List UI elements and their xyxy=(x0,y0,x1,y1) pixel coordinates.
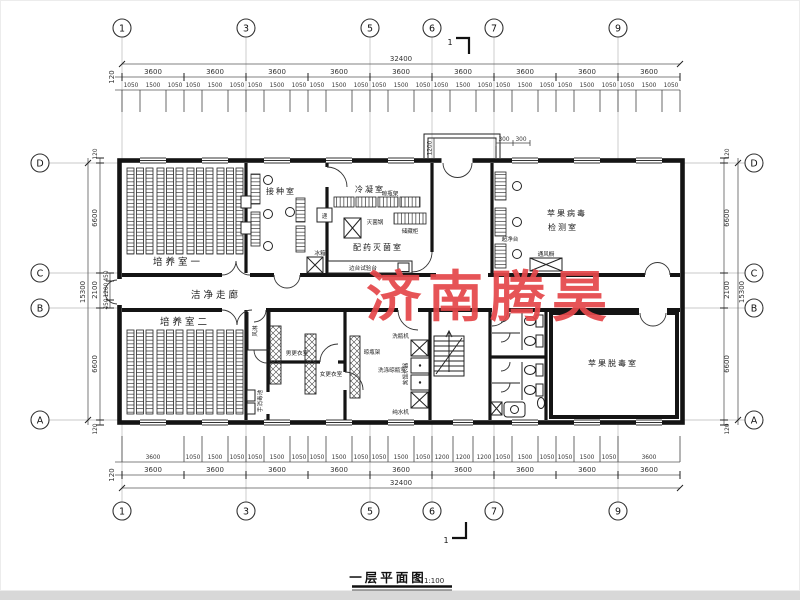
dim-bay: 3600 xyxy=(144,68,162,76)
bottle-washer-label: 洗瓶机 xyxy=(392,332,409,340)
dim-bay: 3600 xyxy=(268,68,286,76)
dim-bay: 3600 xyxy=(392,466,410,474)
room-label-culture1: 培养室一 xyxy=(153,256,203,268)
dim-sub: 1050 xyxy=(230,455,245,461)
clean-bench-label: 超净台 xyxy=(502,235,519,243)
dim-left-sub: 450 xyxy=(104,270,110,281)
dim-sub: 1050 xyxy=(540,83,555,89)
dim-sub: 1050 xyxy=(558,83,573,89)
dim-bay: 3600 xyxy=(640,68,658,76)
hand-sink xyxy=(247,403,255,414)
floor-plan-page: 32400 120 3600 3600 3600 3600 3600 3600 … xyxy=(0,0,800,600)
dim-sub: 1050 xyxy=(186,455,201,461)
stool xyxy=(286,208,295,217)
dim-sub: 1200 xyxy=(435,455,450,461)
grid-bubble-label: 6 xyxy=(429,24,435,35)
dim-sub: 1500 xyxy=(580,455,595,461)
dim-overall-width: 32400 xyxy=(390,479,412,487)
stool xyxy=(264,210,273,219)
grid-bubble-label: 1 xyxy=(119,507,125,518)
dim-porch-step: 300 xyxy=(515,137,526,143)
dim-overall-height: 15300 xyxy=(79,281,87,303)
drawing-title: 一层平面图 xyxy=(349,570,427,585)
dim-sub: 1500 xyxy=(518,455,533,461)
dim-sub: 1200 xyxy=(456,455,471,461)
dim-sub: 1050 xyxy=(416,83,431,89)
dim-sub: 1500 xyxy=(642,83,657,89)
room-label-condensing: 冷凝室 xyxy=(355,184,385,194)
dim-sub: 1050 xyxy=(354,83,369,89)
dim-sub: 1050 xyxy=(620,83,635,89)
bottle-rack-label: 晾瓶架 xyxy=(382,190,399,198)
dim-sub: 1050 xyxy=(416,455,431,461)
dim-left-sub: 450 xyxy=(104,298,110,309)
dim-sub: 1500 xyxy=(208,455,223,461)
dim-bay: 3600 xyxy=(516,466,534,474)
grid-bubble-label: D xyxy=(750,159,757,170)
dim-sub: 1050 xyxy=(434,83,449,89)
detox-door-gap xyxy=(639,307,667,317)
room-label-detox: 苹果脱毒室 xyxy=(588,358,638,368)
grid-bubble-label: 3 xyxy=(243,24,249,35)
room-label-dispensing: 配药灭菌室 xyxy=(353,242,403,252)
pass-box xyxy=(241,222,251,234)
dim-bay: 3600 xyxy=(454,68,472,76)
room-label-inoculation: 接种室 xyxy=(266,186,296,196)
grid-bubble-label: 9 xyxy=(615,24,621,35)
grid-bubble-label: C xyxy=(37,269,44,280)
dim-sub: 1050 xyxy=(310,83,325,89)
dim-sub: 1050 xyxy=(496,83,511,89)
dim-sub: 1050 xyxy=(372,455,387,461)
distiller-label: 蒸馏水器 xyxy=(402,362,410,385)
dim-bay: 3600 xyxy=(268,466,286,474)
bottle-rack-label: 晾瓶架 xyxy=(364,348,381,356)
grid-bubble-label: 5 xyxy=(367,24,373,35)
sterilizer-label: 灭菌锅 xyxy=(367,218,384,226)
dim-bay: 3600 xyxy=(392,68,410,76)
dim-sub: 1050 xyxy=(124,83,139,89)
dim-sub: 1050 xyxy=(496,455,511,461)
dim-right: 6600 xyxy=(723,209,731,227)
dim-overall-height: 15300 xyxy=(738,281,746,303)
floor-plan-drawing: 32400 120 3600 3600 3600 3600 3600 3600 … xyxy=(0,0,800,600)
dim-sub: 1050 xyxy=(372,83,387,89)
dim-bay: 3600 xyxy=(578,68,596,76)
dim-sub: 1050 xyxy=(354,455,369,461)
dim-right: 2100 xyxy=(723,281,731,299)
corridor-west-gap xyxy=(115,279,124,305)
room-detox: 苹果脱毒室 xyxy=(588,358,638,368)
scan-edge-bottom xyxy=(0,591,800,600)
fridge-label: 冰箱 xyxy=(314,249,326,257)
dim-bay: 3600 xyxy=(206,68,224,76)
pass-box xyxy=(241,196,251,208)
dim-sub: 1050 xyxy=(664,83,679,89)
toilet xyxy=(536,335,543,347)
dim-sub: 1500 xyxy=(580,83,595,89)
dim-sub: 1500 xyxy=(332,455,347,461)
dim-bay: 3600 xyxy=(330,68,348,76)
watermark: 济南腾昊 xyxy=(366,265,614,329)
room-label-female-locker: 女更衣室 xyxy=(320,370,343,378)
dim-sub: 1050 xyxy=(602,83,617,89)
grid-bubble-label: A xyxy=(37,416,44,427)
toilet xyxy=(536,384,543,396)
storage-cabinet-label: 储藏柜 xyxy=(402,227,419,235)
locker-rack xyxy=(270,326,281,384)
dim-bay: 3600 xyxy=(330,466,348,474)
dim-left: 120 xyxy=(93,423,99,434)
room-label-detection-line2: 检测室 xyxy=(548,222,578,232)
drawing-scale: 1:100 xyxy=(424,577,444,585)
dim-sub: 1500 xyxy=(270,83,285,89)
dim-sub: 1500 xyxy=(208,83,223,89)
entrance-gap xyxy=(442,156,473,166)
dim-bay: 3600 xyxy=(454,466,472,474)
dim-right: 6600 xyxy=(723,355,731,373)
dim-sub: 1050 xyxy=(540,455,555,461)
dim-sub: 1500 xyxy=(518,83,533,89)
bottle-rack xyxy=(350,336,360,398)
dim-sub: 3600 xyxy=(146,455,161,461)
grid-bubble-label: 5 xyxy=(367,507,373,518)
grid-bubble-label: B xyxy=(751,304,758,315)
dim-bay: 3600 xyxy=(578,466,596,474)
dim-porch-step: 300 xyxy=(498,137,509,143)
dim-sub: 1050 xyxy=(602,455,617,461)
dim-sub: 1500 xyxy=(456,83,471,89)
room-label-corridor: 洁净走廊 xyxy=(191,289,241,301)
room-label-male-locker: 男更衣室 xyxy=(286,349,309,357)
dim-sub: 1050 xyxy=(230,83,245,89)
urinal xyxy=(538,398,545,409)
dim-sub: 1500 xyxy=(332,83,347,89)
dim-sub: 1500 xyxy=(394,83,409,89)
dim-sub: 1050 xyxy=(248,83,263,89)
water-purifier-label: 纯水机 xyxy=(392,408,409,416)
grid-bubble-label: 3 xyxy=(243,507,249,518)
grid-bubble-label: 7 xyxy=(491,24,497,35)
hand-sink xyxy=(247,390,255,401)
dim-bay: 3600 xyxy=(516,68,534,76)
dim-sub: 1050 xyxy=(168,83,183,89)
toilet xyxy=(536,364,543,376)
dim-sub: 1050 xyxy=(292,455,307,461)
locker-rack xyxy=(305,334,316,394)
pass-window-label: 递 xyxy=(322,212,328,220)
corridor: 洁净走廊 xyxy=(191,289,241,301)
dim-porch-depth: 1200 xyxy=(428,140,434,155)
fume-hood-label: 通风橱 xyxy=(538,250,555,258)
hand-sink-label: 手消毒池 xyxy=(256,389,264,412)
dim-edge: 120 xyxy=(108,468,116,481)
stool xyxy=(513,182,522,191)
dim-left: 120 xyxy=(93,148,99,159)
dim-bay: 3600 xyxy=(640,466,658,474)
grid-bubble-label: D xyxy=(36,159,43,170)
grid-bubble-label: A xyxy=(751,416,758,427)
grid-bubble-label: C xyxy=(751,269,758,280)
dim-left: 6600 xyxy=(91,355,99,373)
dim-sub: 1050 xyxy=(292,83,307,89)
dim-left: 2100 xyxy=(91,281,99,299)
stool xyxy=(264,242,273,251)
dim-sub: 1500 xyxy=(146,83,161,89)
room-label-detection-line1: 苹果病毒 xyxy=(547,208,587,218)
dim-sub: 1500 xyxy=(270,455,285,461)
dim-sub: 1050 xyxy=(186,83,201,89)
dim-edge: 120 xyxy=(108,70,116,83)
dim-sub: 1200 xyxy=(477,455,492,461)
grid-bubble-label: 1 xyxy=(119,24,125,35)
grid-bubble-label: 6 xyxy=(429,507,435,518)
grid-bubble-label: 7 xyxy=(491,507,497,518)
room-label-culture2: 培养室二 xyxy=(160,316,210,328)
dim-right: 120 xyxy=(725,148,731,159)
dim-sub: 1050 xyxy=(558,455,573,461)
grid-bubble-label: 9 xyxy=(615,507,621,518)
dim-sub: 1500 xyxy=(394,455,409,461)
dim-left: 6600 xyxy=(91,209,99,227)
dim-right: 120 xyxy=(725,423,731,434)
dim-sub: 1050 xyxy=(248,455,263,461)
dim-bay: 3600 xyxy=(206,466,224,474)
stool xyxy=(513,250,522,259)
room-label-washing: 洗涤晾瓶室 xyxy=(378,366,406,374)
dim-bay: 3600 xyxy=(144,466,162,474)
dim-overall-width: 32400 xyxy=(390,55,412,63)
section-label: 1 xyxy=(443,536,448,545)
dim-sub: 3600 xyxy=(642,455,657,461)
dim-sub: 1050 xyxy=(310,455,325,461)
section-label: 1 xyxy=(447,38,452,47)
room-label-air-shower: 风淋 xyxy=(251,325,259,337)
dim-sub: 1050 xyxy=(478,83,493,89)
stool xyxy=(513,218,522,227)
stool xyxy=(264,176,273,185)
storage-cabinet xyxy=(394,213,426,224)
grid-bubble-label: B xyxy=(37,304,44,315)
